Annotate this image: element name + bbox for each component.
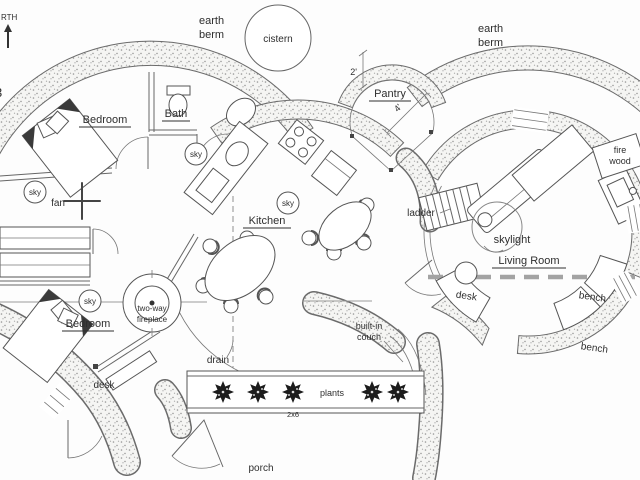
closet <box>0 227 118 285</box>
plant <box>387 381 409 403</box>
plants-label: plants <box>320 388 345 398</box>
refrigerator <box>312 151 357 196</box>
drain-label: drain <box>207 355 229 366</box>
bench-lower-label: bench <box>580 341 609 356</box>
built-in-couch-line1: built-in <box>356 321 383 331</box>
pantry-corner-tick <box>429 130 433 134</box>
bath-label: Bath <box>165 108 188 120</box>
cistern-label: cistern <box>263 34 292 45</box>
porch-wall-left <box>165 390 181 428</box>
porch-label: porch <box>248 463 273 474</box>
sky-label: sky <box>190 150 202 159</box>
dining-table-2 <box>302 192 380 260</box>
plant <box>247 381 269 403</box>
pantry-corner-tick <box>350 134 354 138</box>
bedroom-door-arc <box>116 137 148 169</box>
earth-berm-left-line2: berm <box>199 29 224 41</box>
left-edge-partial-text: 3 <box>0 85 2 100</box>
living-room-label: Living Room <box>498 255 559 267</box>
plant <box>361 381 383 403</box>
fire-wood-line2: wood <box>608 156 631 166</box>
living-top-window <box>511 107 550 134</box>
north-label: RTH <box>1 13 18 22</box>
earth-berm-left-line1: earth <box>199 15 224 27</box>
pantry-label: Pantry <box>374 88 406 100</box>
fireplace-line2: fireplace <box>137 315 168 324</box>
sky-label: sky <box>84 297 96 306</box>
bedroom-desk-label: desk <box>93 380 115 391</box>
courtyard-doors <box>68 420 223 468</box>
dim-2ft: 2' <box>350 67 357 77</box>
courtyard-door-arc <box>68 436 102 458</box>
earth-berm-right-line2: berm <box>478 37 503 49</box>
built-in-couch-line2: couch <box>357 332 381 342</box>
skylight-label: skylight <box>494 234 531 246</box>
floor-plan-canvas: sky sky sky sky RTH 3 earth berm cistern… <box>0 0 640 480</box>
living-desk-chair <box>455 262 477 284</box>
bedroom-bottom-label: Bedroom <box>66 318 111 330</box>
sky-label: sky <box>29 188 41 197</box>
sky-label: sky <box>282 199 294 208</box>
spiral-window <box>39 382 75 419</box>
closet-door-arc <box>93 229 118 254</box>
living-dome-wall-a <box>422 111 515 180</box>
porch-wall-right <box>424 344 432 478</box>
living-door-leaf <box>405 260 432 283</box>
lumber-label: 2x6 <box>287 410 299 419</box>
north-arrow-icon <box>4 24 12 48</box>
porch-door-arc <box>172 456 220 468</box>
fireplace-line1: two-way <box>137 304 166 313</box>
fire-wood-line1: fire <box>614 145 627 155</box>
living-right-window <box>624 202 640 233</box>
kitchen-label: Kitchen <box>249 215 286 227</box>
dim-4ft: 4' <box>392 102 404 114</box>
floor-plan-page: sky sky sky sky RTH 3 earth berm cistern… <box>0 0 640 480</box>
pantry-corner-tick <box>389 168 393 172</box>
fan-label: fan <box>51 198 65 209</box>
living-door-arc <box>405 283 441 295</box>
ladder-label: ladder <box>407 208 435 219</box>
bedroom-top-label: Bedroom <box>83 114 128 126</box>
living-dome-wall-c <box>624 228 640 278</box>
dining-table-1 <box>193 222 288 313</box>
earth-berm-right-line1: earth <box>478 23 503 35</box>
plant <box>282 381 304 403</box>
plant <box>212 381 234 403</box>
